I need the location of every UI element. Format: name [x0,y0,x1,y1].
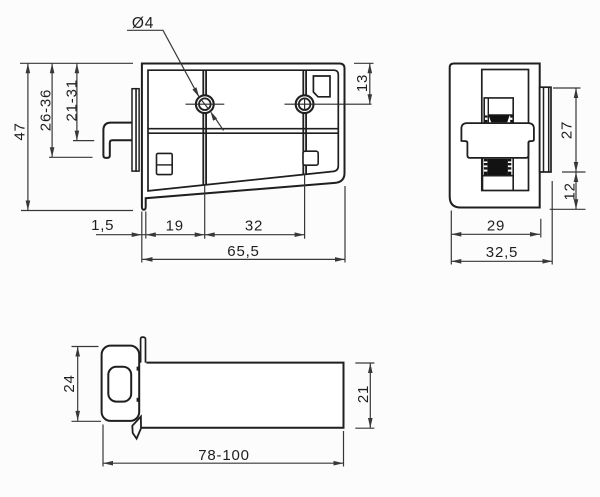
svg-text:26-36: 26-36 [38,89,55,131]
svg-text:12: 12 [561,182,578,200]
svg-text:65,5: 65,5 [227,243,259,260]
svg-text:24: 24 [61,374,78,392]
svg-text:29: 29 [487,218,505,235]
svg-text:47: 47 [12,122,29,140]
svg-text:21: 21 [355,385,372,403]
svg-text:19: 19 [166,218,184,235]
svg-text:27: 27 [559,121,576,139]
svg-text:13: 13 [354,74,371,92]
svg-text:Ø4: Ø4 [132,15,154,32]
svg-text:1,5: 1,5 [91,217,114,234]
svg-text:78-100: 78-100 [198,447,250,464]
svg-text:32: 32 [245,218,263,235]
svg-text:21-31: 21-31 [63,79,80,121]
svg-text:32,5: 32,5 [486,244,518,261]
